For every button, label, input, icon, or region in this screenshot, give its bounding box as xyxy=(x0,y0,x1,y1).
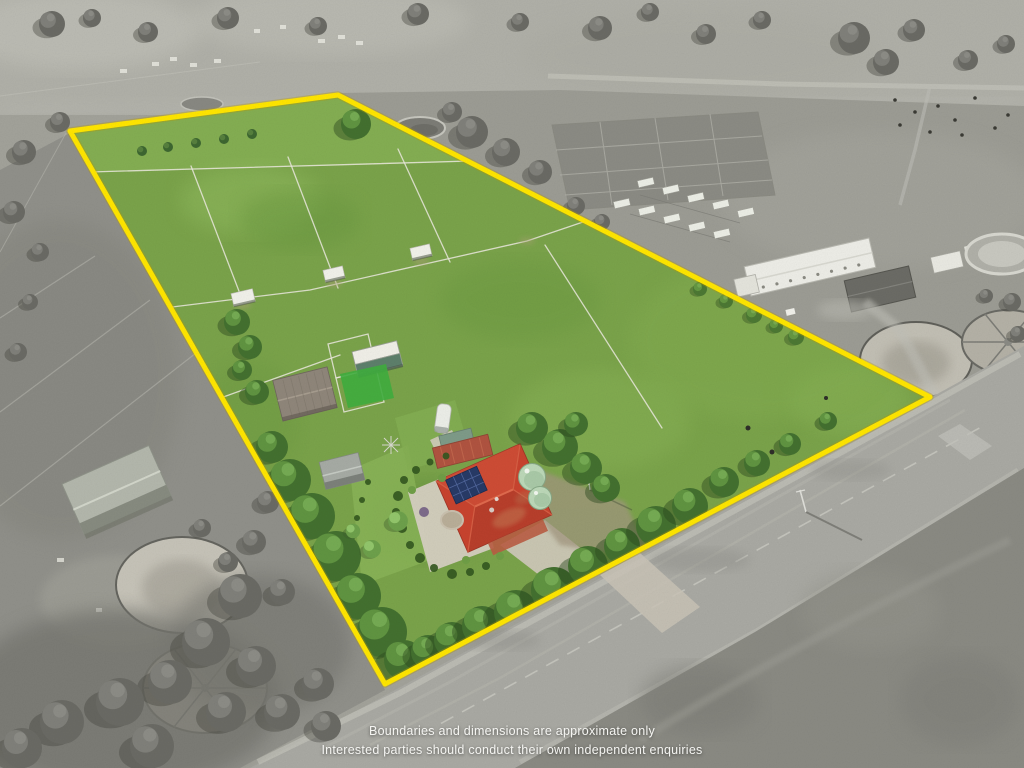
disclaimer-line2: Interested parties should conduct their … xyxy=(0,741,1024,760)
photo-grain-overlay xyxy=(0,0,1024,768)
aerial-photograph xyxy=(0,0,1024,768)
disclaimer: Boundaries and dimensions are approximat… xyxy=(0,722,1024,760)
disclaimer-line1: Boundaries and dimensions are approximat… xyxy=(0,722,1024,741)
aerial-photo-stage: Boundaries and dimensions are approximat… xyxy=(0,0,1024,768)
